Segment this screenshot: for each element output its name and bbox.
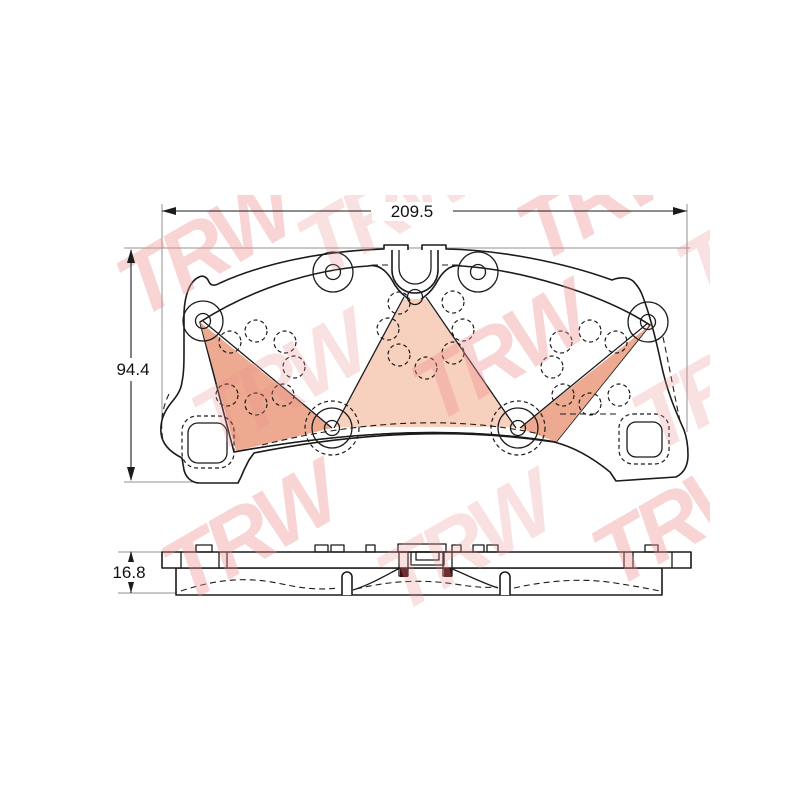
brake-pad-technical-drawing: TRW TRW TRW TRW TRW TRW TRW TRW TRW TRW …	[0, 0, 800, 800]
arrow-down	[127, 467, 135, 481]
arrow-right	[673, 207, 687, 215]
tab	[331, 545, 344, 552]
brand-watermark: TRW	[360, 448, 579, 632]
dimension-thickness: 16.8	[110, 551, 150, 593]
arrow-up	[128, 551, 134, 562]
brand-watermark: TRW	[660, 138, 800, 322]
friction-slot	[342, 572, 352, 595]
height-dimension-label: 94.4	[116, 360, 149, 379]
width-dimension-label: 209.5	[391, 202, 434, 221]
thickness-dimension-label: 16.8	[112, 563, 145, 582]
arrow-down	[128, 582, 134, 593]
drawing-canvas: TRW TRW TRW TRW TRW TRW TRW TRW TRW TRW …	[0, 0, 800, 800]
